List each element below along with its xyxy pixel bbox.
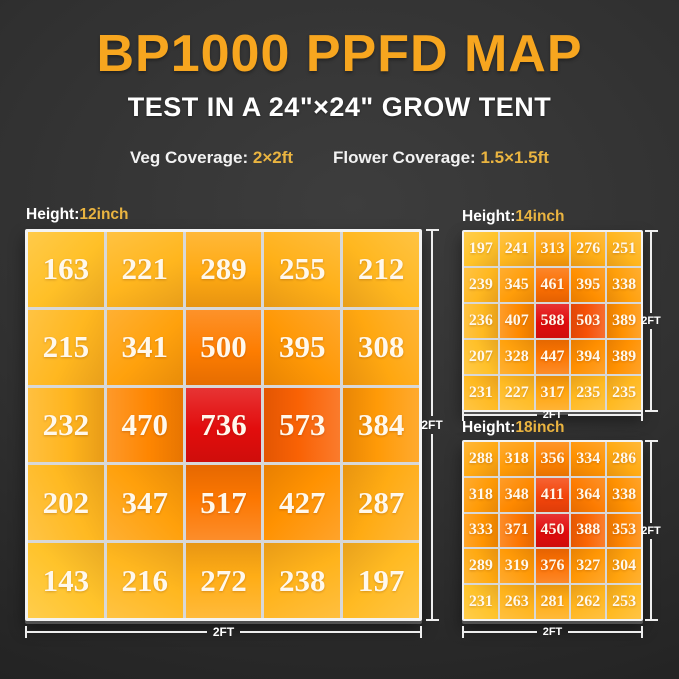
- heatmap-grid-18inch: 2883183563342863183484113643383333714503…: [462, 440, 643, 621]
- ppfd-map-infographic: BP1000 PPFD MAP TEST IN A 24"×24" GROW T…: [0, 0, 679, 679]
- ppfd-cell: 281: [536, 585, 570, 619]
- dimension-line: [464, 631, 537, 633]
- ppfd-cell: 241: [500, 232, 534, 266]
- ppfd-cell: 500: [186, 310, 262, 385]
- dimension-label: 2FT: [641, 523, 661, 539]
- dimension-line: [650, 442, 652, 523]
- ppfd-cell: 232: [28, 388, 104, 463]
- ppfd-cell: 238: [264, 543, 340, 618]
- dimension-line: [650, 232, 652, 313]
- ppfd-cell: 308: [343, 310, 419, 385]
- ppfd-cell: 736: [186, 388, 262, 463]
- dimension-cap: [645, 410, 658, 412]
- ppfd-cell: 276: [571, 232, 605, 266]
- ppfd-cell: 239: [464, 268, 498, 302]
- dimension-cap: [645, 619, 658, 621]
- dimension-cap: [641, 626, 643, 638]
- width-dimension-18inch: 2FT: [462, 625, 643, 639]
- ppfd-cell: 197: [464, 232, 498, 266]
- ppfd-cell: 272: [186, 543, 262, 618]
- dimension-label: 2FT: [421, 416, 442, 434]
- ppfd-cell: 318: [500, 442, 534, 476]
- ppfd-cell: 319: [500, 549, 534, 583]
- ppfd-cell: 341: [107, 310, 183, 385]
- ppfd-cell: 215: [28, 310, 104, 385]
- ppfd-cell: 287: [343, 465, 419, 540]
- heatmap-grid-14inch: 1972413132762512393454613953382364075885…: [462, 230, 643, 412]
- ppfd-cell: 288: [464, 442, 498, 476]
- ppfd-cell: 328: [500, 340, 534, 374]
- ppfd-cell: 163: [28, 232, 104, 307]
- dimension-line: [240, 631, 420, 633]
- ppfd-cell: 327: [571, 549, 605, 583]
- height-label-18inch: Height:18inch: [462, 419, 565, 437]
- ppfd-cell: 388: [571, 514, 605, 548]
- ppfd-cell: 450: [536, 514, 570, 548]
- coverage-row: Veg Coverage: 2×2ft Flower Coverage: 1.5…: [0, 148, 679, 168]
- ppfd-cell: 262: [571, 585, 605, 619]
- ppfd-cell: 394: [571, 340, 605, 374]
- height-dimension-14inch: 2FT: [636, 230, 666, 412]
- height-label-value: 12inch: [79, 206, 128, 223]
- height-label-prefix: Height:: [462, 419, 515, 436]
- dimension-label: 2FT: [207, 625, 240, 639]
- veg-coverage-value: 2×2ft: [253, 148, 293, 167]
- ppfd-cell: 334: [571, 442, 605, 476]
- ppfd-cell: 289: [186, 232, 262, 307]
- dimension-line: [431, 231, 433, 416]
- height-label-value: 18inch: [515, 419, 564, 436]
- flower-coverage-label: Flower Coverage:: [333, 148, 476, 167]
- height-label-value: 14inch: [515, 208, 564, 225]
- height-label-14inch: Height:14inch: [462, 208, 565, 226]
- height-label-12inch: Height:12inch: [26, 206, 129, 224]
- ppfd-cell: 407: [500, 304, 534, 338]
- ppfd-cell: 333: [464, 514, 498, 548]
- ppfd-cell: 384: [343, 388, 419, 463]
- ppfd-cell: 318: [464, 478, 498, 512]
- ppfd-cell: 356: [536, 442, 570, 476]
- ppfd-cell: 212: [343, 232, 419, 307]
- ppfd-cell: 197: [343, 543, 419, 618]
- height-dimension-12inch: 2FT: [417, 229, 447, 621]
- ppfd-cell: 207: [464, 340, 498, 374]
- ppfd-cell: 427: [264, 465, 340, 540]
- ppfd-cell: 289: [464, 549, 498, 583]
- ppfd-cell: 364: [571, 478, 605, 512]
- ppfd-cell: 348: [500, 478, 534, 512]
- ppfd-cell: 371: [500, 514, 534, 548]
- heatmap-grid-12inch: 1632212892552122153415003953082324707365…: [25, 229, 422, 621]
- ppfd-cell: 231: [464, 585, 498, 619]
- ppfd-cell: 345: [500, 268, 534, 302]
- page-title: BP1000 PPFD MAP: [0, 24, 679, 84]
- dimension-line: [650, 539, 652, 620]
- ppfd-cell: 216: [107, 543, 183, 618]
- ppfd-cell: 503: [571, 304, 605, 338]
- ppfd-cell: 313: [536, 232, 570, 266]
- ppfd-cell: 376: [536, 549, 570, 583]
- ppfd-cell: 231: [464, 376, 498, 410]
- ppfd-cell: 143: [28, 543, 104, 618]
- veg-coverage: Veg Coverage: 2×2ft: [130, 148, 293, 168]
- ppfd-cell: 235: [571, 376, 605, 410]
- dimension-line: [568, 631, 641, 633]
- ppfd-cell: 263: [500, 585, 534, 619]
- dimension-line: [650, 329, 652, 410]
- ppfd-cell: 317: [536, 376, 570, 410]
- ppfd-cell: 470: [107, 388, 183, 463]
- height-dimension-18inch: 2FT: [636, 440, 666, 621]
- dimension-cap: [641, 409, 643, 421]
- ppfd-cell: 221: [107, 232, 183, 307]
- dimension-cap: [420, 626, 422, 638]
- dimension-label: 2FT: [537, 626, 569, 638]
- flower-coverage-value: 1.5×1.5ft: [480, 148, 549, 167]
- dimension-label: 2FT: [641, 313, 661, 329]
- ppfd-cell: 395: [264, 310, 340, 385]
- dimension-cap: [426, 619, 439, 621]
- ppfd-cell: 255: [264, 232, 340, 307]
- ppfd-cell: 517: [186, 465, 262, 540]
- ppfd-cell: 202: [28, 465, 104, 540]
- width-dimension-12inch: 2FT: [25, 625, 422, 639]
- height-label-prefix: Height:: [26, 206, 79, 223]
- dimension-line: [568, 414, 641, 416]
- ppfd-cell: 461: [536, 268, 570, 302]
- ppfd-cell: 411: [536, 478, 570, 512]
- ppfd-cell: 227: [500, 376, 534, 410]
- dimension-line: [431, 434, 433, 619]
- dimension-line: [464, 414, 537, 416]
- ppfd-cell: 395: [571, 268, 605, 302]
- ppfd-cell: 347: [107, 465, 183, 540]
- ppfd-cell: 447: [536, 340, 570, 374]
- page-subtitle: TEST IN A 24"×24" GROW TENT: [0, 92, 679, 123]
- flower-coverage: Flower Coverage: 1.5×1.5ft: [333, 148, 549, 168]
- dimension-line: [27, 631, 207, 633]
- veg-coverage-label: Veg Coverage:: [130, 148, 248, 167]
- height-label-prefix: Height:: [462, 208, 515, 225]
- ppfd-cell: 236: [464, 304, 498, 338]
- ppfd-cell: 588: [536, 304, 570, 338]
- ppfd-cell: 573: [264, 388, 340, 463]
